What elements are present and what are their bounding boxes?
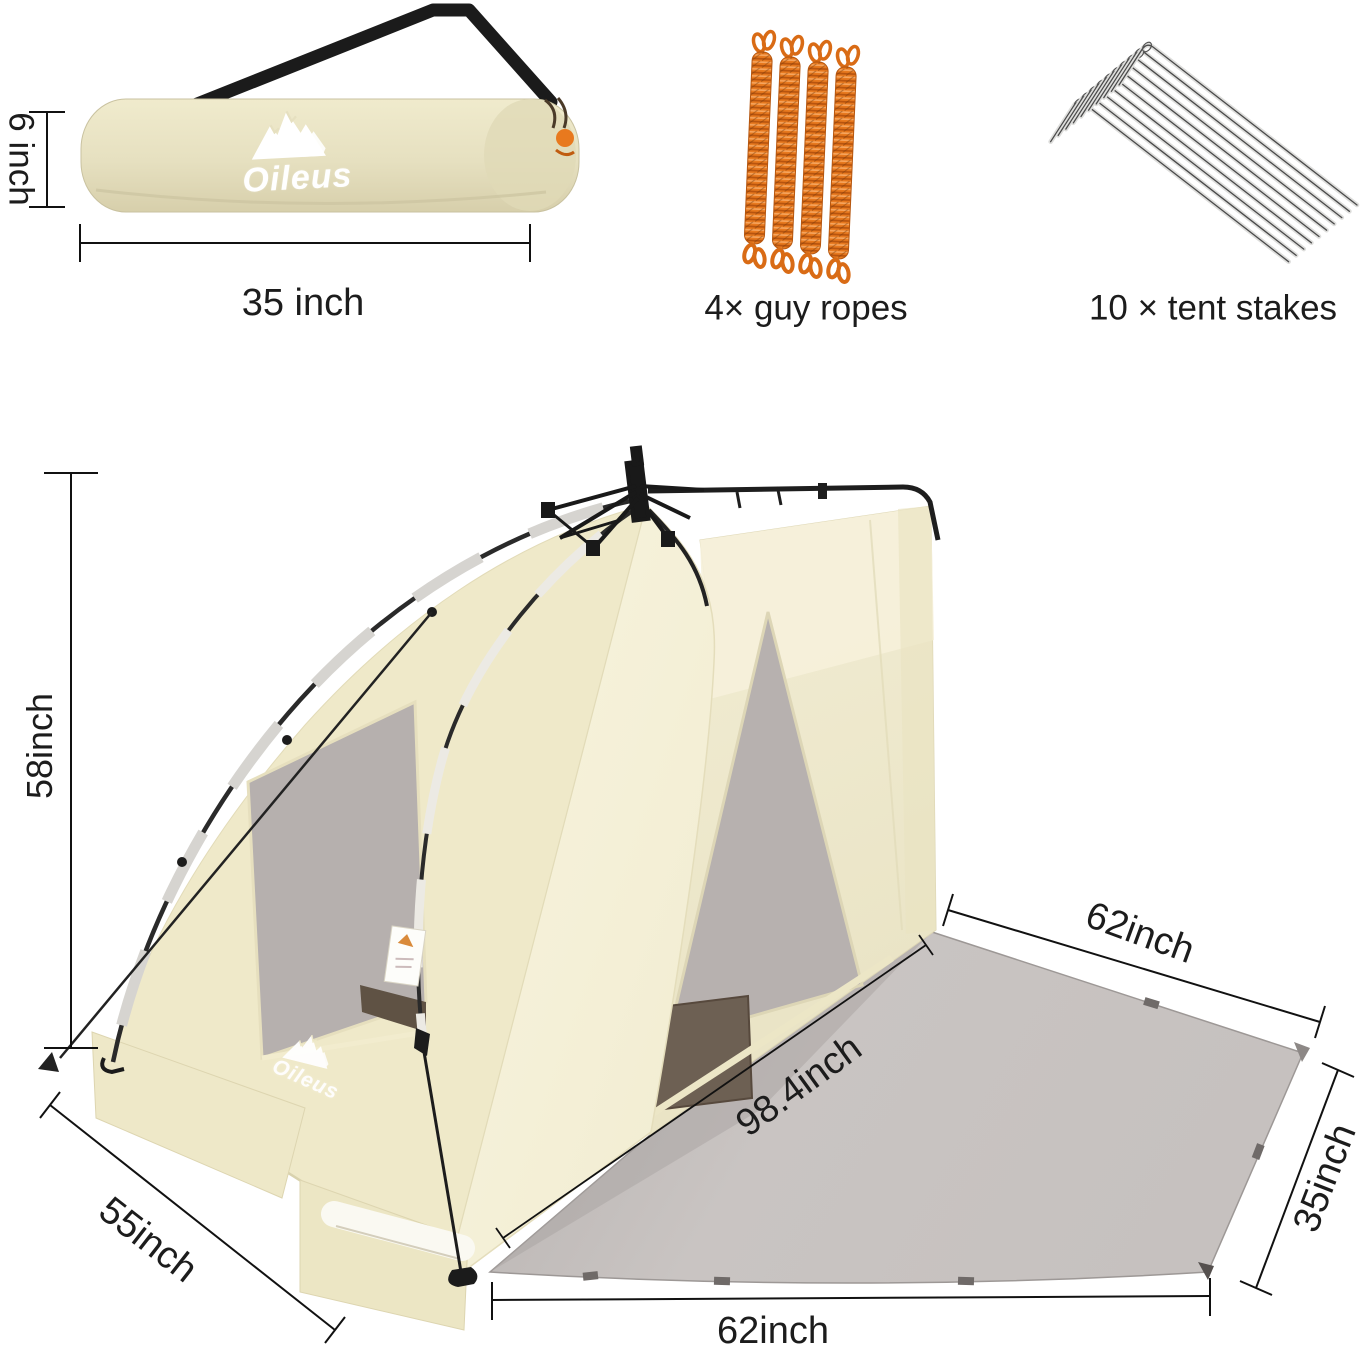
hang-tag: [384, 926, 425, 986]
bag-cinch-toggle: [556, 129, 574, 147]
left-guy-anchor: [38, 1052, 59, 1072]
guy-rope: [742, 30, 777, 269]
guy-ropes-group: [742, 30, 861, 284]
bag-brand-logo: Oileus: [239, 106, 353, 198]
tent-stakes-caption: 10 × tent stakes: [1089, 291, 1337, 326]
dim-bag-length-label: 35 inch: [242, 284, 365, 322]
tent-illustration: [38, 448, 1310, 1330]
front-stake-foot: [448, 1267, 477, 1287]
dim-bag-height-label: 6 inch: [4, 112, 39, 205]
guy-rope: [826, 45, 861, 284]
mountain-logo-icon: [246, 107, 345, 164]
guy-rope: [798, 40, 833, 279]
product-dimension-diagram: 6 inch 35 inch 4× guy ropes 10 × tent st…: [0, 0, 1365, 1365]
brand-name-bag: Oileus: [242, 158, 354, 198]
illustration-canvas: [0, 0, 1365, 1365]
guy-rope: [770, 35, 805, 274]
guy-ropes-caption: 4× guy ropes: [704, 291, 907, 326]
tent-stakes-group: [1051, 41, 1357, 262]
dim-tent-height-label: 58inch: [22, 693, 58, 799]
dim-mat-bottom-label: 62inch: [717, 1312, 829, 1350]
